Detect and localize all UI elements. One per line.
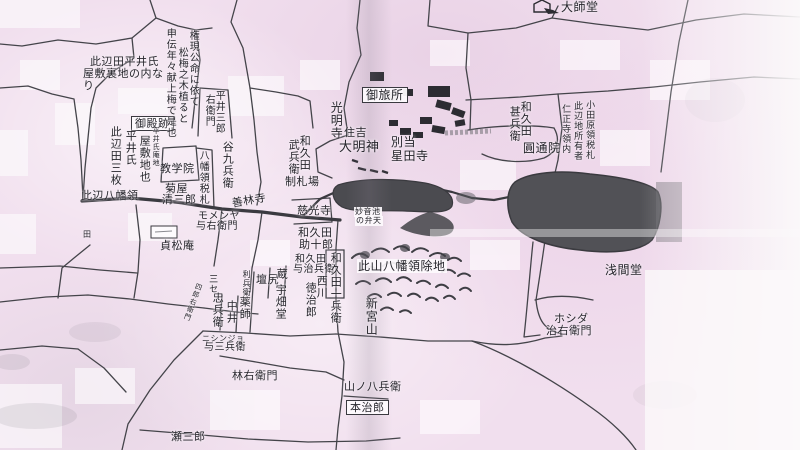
map-labels-layer: 大師堂御旅所住吉大明神別当星田寺制札場圓通院教学院菊屋清三郎此辺八幡領善林寺慈光… bbox=[0, 0, 800, 450]
map-label: 利兵衛 bbox=[242, 270, 250, 297]
map-label: 三セ bbox=[207, 274, 216, 294]
map-label: 和久田 bbox=[520, 101, 531, 137]
map-label: 権現公命に依て bbox=[187, 30, 197, 107]
map-label: 右衛門 bbox=[203, 94, 213, 127]
map-label: 大師堂 bbox=[561, 1, 599, 13]
map-label: 宇畑堂 bbox=[275, 284, 286, 320]
map-label: 瀬三郎 bbox=[171, 431, 206, 442]
map-label: 林右衛門 bbox=[232, 370, 278, 381]
scanned-village-map: 大師堂御旅所住吉大明神別当星田寺制札場圓通院教学院菊屋清三郎此辺八幡領善林寺慈光… bbox=[0, 0, 800, 450]
map-label: 御旅所 bbox=[362, 87, 408, 103]
map-label: 小田原領税札 bbox=[584, 100, 593, 160]
map-label: の弁天 bbox=[355, 216, 383, 226]
map-label: 助十郎 bbox=[299, 239, 334, 250]
map-label: 八幡領税札 bbox=[197, 150, 207, 205]
map-label: 田 bbox=[83, 231, 92, 239]
map-label: 屋敷地也 bbox=[139, 135, 150, 183]
map-label: 蔵 bbox=[276, 268, 287, 280]
map-label: 谷九兵衛 bbox=[222, 141, 233, 189]
map-label: 武兵衛 bbox=[288, 139, 299, 175]
map-label: 圓通院 bbox=[523, 142, 561, 154]
map-label: 浅間堂 bbox=[605, 264, 643, 276]
map-label: 光明寺 bbox=[330, 101, 342, 140]
map-label: 西川 bbox=[316, 275, 327, 299]
map-label: 大明神 bbox=[339, 141, 380, 154]
map-label: 中井 bbox=[226, 300, 237, 324]
map-label: 屋敷裏地の内な bbox=[83, 68, 164, 79]
map-label: 教学院 bbox=[160, 163, 195, 174]
map-label: 松梅之木植ると bbox=[176, 47, 186, 124]
map-label: 別当 bbox=[391, 136, 416, 148]
map-label: 慈光寺 bbox=[297, 205, 332, 216]
map-label: 忠兵衛 bbox=[212, 292, 223, 328]
map-label: 与三兵衛 bbox=[204, 343, 246, 353]
map-label: 薬師 bbox=[239, 296, 250, 320]
map-label: り bbox=[83, 80, 95, 91]
map-label: 此辺地所有者 bbox=[572, 101, 581, 161]
map-label: 和久田 bbox=[299, 135, 310, 171]
map-label: 住吉 bbox=[344, 127, 367, 138]
map-label: 此山八幡領除地 bbox=[357, 259, 447, 273]
map-label: ホシダ bbox=[554, 313, 589, 324]
map-label: 平井氏庵地 bbox=[152, 127, 159, 167]
map-label: 甚兵衛 bbox=[509, 106, 520, 142]
map-label: 此辺田平井氏 bbox=[90, 56, 159, 67]
map-label: 貞松庵 bbox=[160, 240, 195, 251]
map-label: 本治郎 bbox=[346, 400, 389, 415]
map-label: 四郎右衛門 bbox=[182, 282, 202, 322]
map-label: 治右衛門 bbox=[546, 325, 592, 336]
map-label: 制札場 bbox=[285, 176, 320, 187]
map-label: 和久田 bbox=[298, 227, 333, 238]
map-label: 徳治郎 bbox=[305, 282, 316, 318]
map-label: 山ノ八兵衛 bbox=[344, 381, 402, 392]
map-label: 平井氏 bbox=[125, 130, 136, 166]
map-label: 新宮山 bbox=[365, 297, 377, 336]
map-label: 清三郎 bbox=[162, 194, 197, 205]
map-label: 此辺田三枚 bbox=[110, 126, 121, 186]
map-label: 申伝年々献上梅で是也 bbox=[164, 28, 174, 138]
map-label: 仁正寺領内 bbox=[560, 104, 569, 154]
map-label: 平井三郎 bbox=[213, 90, 223, 134]
map-label: 善林寺 bbox=[231, 192, 267, 209]
map-label: 和久田一兵衛 bbox=[330, 252, 341, 324]
map-label: 星田寺 bbox=[391, 150, 429, 162]
map-label: 与右衛門 bbox=[196, 222, 238, 232]
map-label: 此辺八幡領 bbox=[81, 190, 139, 201]
